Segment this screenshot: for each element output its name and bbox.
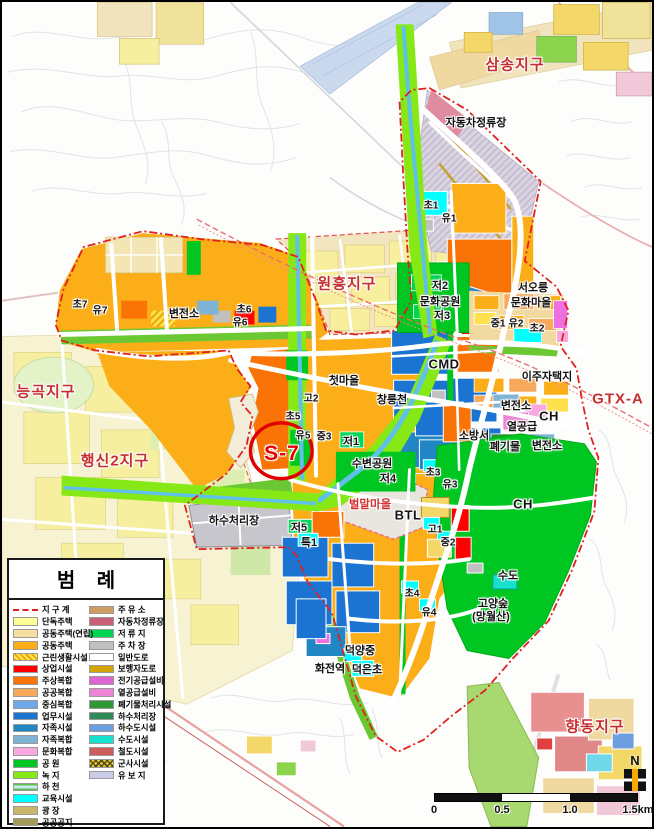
legend-column-right: 주 유 소자동차정류장저 류 지주 차 장일반도로보행자도로전기공급설비열공급설… <box>89 604 165 829</box>
legend-item: 철도시설 <box>89 746 165 758</box>
scale-bar-tick: 0.5 <box>494 804 509 816</box>
legend-item: 전기공급설비 <box>89 675 165 687</box>
legend-swatch <box>89 771 114 780</box>
legend-swatch <box>89 688 114 697</box>
scale-bar-tick: 0 <box>431 804 437 816</box>
legend-swatch <box>13 818 38 827</box>
legend-item-label: 공동주택 <box>42 639 72 651</box>
scale-bar-segment <box>502 794 569 801</box>
legend-swatch <box>13 783 38 792</box>
legend-item: 녹 지 <box>13 769 89 781</box>
legend-item: 공 원 <box>13 757 89 769</box>
legend-item: 하수처리장 <box>89 710 165 722</box>
legend-item-label: 주상복합 <box>42 675 72 687</box>
legend-item: 상업시설 <box>13 663 89 675</box>
legend-item: 자족복합 <box>13 734 89 746</box>
legend-column-left: 지 구 계단독주택공동주택(연립)공동주택근린생활시설상업시설주상복합공공복합중… <box>13 604 89 829</box>
legend-item-label: 근린생활시설 <box>42 651 88 663</box>
legend-item-label: 주 차 장 <box>118 639 145 651</box>
legend-item: 문화복합 <box>13 746 89 758</box>
legend-swatch <box>13 676 38 685</box>
legend-swatch <box>89 735 114 744</box>
legend-swatch <box>89 653 114 662</box>
legend-item-label: 문화복합 <box>42 745 72 757</box>
legend-item: 광 장 <box>13 805 89 817</box>
legend-item-label: 저 류 지 <box>118 628 145 640</box>
legend-item-label: 하수처리장 <box>118 710 156 722</box>
legend-item-label: 철도시설 <box>118 745 148 757</box>
scale-bar: 00.51.01.5km <box>434 793 638 818</box>
legend-item: 군사시설 <box>89 757 165 769</box>
legend-swatch <box>89 700 114 709</box>
legend-swatch <box>13 617 38 626</box>
legend-swatch <box>89 724 114 733</box>
legend-item-label: 교육시설 <box>42 793 72 805</box>
legend-item-label: 열공급설비 <box>118 687 156 699</box>
scale-bar-tick: 1.5km <box>622 804 653 816</box>
legend-item-label: 공공복합 <box>42 687 72 699</box>
legend-columns: 지 구 계단독주택공동주택(연립)공동주택근린생활시설상업시설주상복합공공복합중… <box>9 600 163 829</box>
legend-item: 유 보 지 <box>89 769 165 781</box>
legend-swatch <box>13 712 38 721</box>
compass-n-label: N <box>623 753 647 768</box>
legend-item: 주 유 소 <box>89 604 165 616</box>
legend-swatch <box>13 759 38 768</box>
legend-swatch <box>13 771 38 780</box>
legend-item-label: 보행자도로 <box>118 663 156 675</box>
legend-swatch <box>89 617 114 626</box>
legend-item-label: 자족복합 <box>42 734 72 746</box>
legend-swatch <box>89 759 114 768</box>
legend-item: 근린생활시설 <box>13 651 89 663</box>
legend-swatch <box>13 806 38 815</box>
legend-item-label: 광 장 <box>42 804 60 816</box>
legend-swatch <box>13 735 38 744</box>
legend-item: 업무시설 <box>13 710 89 722</box>
legend-item-label: 자동차정류장 <box>118 616 164 628</box>
legend-item-label: 공 원 <box>42 757 60 769</box>
legend-item: 공공공지 <box>13 816 89 828</box>
legend-swatch <box>89 712 114 721</box>
legend-item: 자족시설 <box>13 722 89 734</box>
legend-swatch <box>13 747 38 756</box>
legend-swatch <box>13 665 38 674</box>
legend-item: 지 구 계 <box>13 604 89 616</box>
legend-item-label: 녹 지 <box>42 769 60 781</box>
legend-item: 자동차정류장 <box>89 616 165 628</box>
legend-item: 수도시설 <box>89 734 165 746</box>
legend-item-label: 주 유 소 <box>118 604 145 616</box>
legend-item: 폐기물처리시설 <box>89 698 165 710</box>
legend-item: 공동주택 <box>13 639 89 651</box>
legend-item: 단독주택 <box>13 616 89 628</box>
legend-swatch <box>13 700 38 709</box>
legend-swatch <box>13 653 38 662</box>
legend-item-label: 자족시설 <box>42 722 72 734</box>
legend-swatch <box>89 665 114 674</box>
legend-swatch <box>13 629 38 638</box>
legend-item-label: 중심복합 <box>42 698 72 710</box>
legend-item: 하수도시설 <box>89 722 165 734</box>
legend-swatch <box>13 794 38 803</box>
legend-panel: 범 례 지 구 계단독주택공동주택(연립)공동주택근린생활시설상업시설주상복합공… <box>7 558 165 825</box>
legend-item: 열공급설비 <box>89 687 165 699</box>
legend-item-label: 하수도시설 <box>118 722 156 734</box>
scale-bar-track <box>434 793 638 802</box>
scale-bar-segment <box>435 794 502 801</box>
legend-item: 중심복합 <box>13 698 89 710</box>
legend-item-label: 수도시설 <box>118 734 148 746</box>
legend-item-label: 유 보 지 <box>118 769 145 781</box>
scale-bar-tick: 1.0 <box>562 804 577 816</box>
legend-item-label: 업무시설 <box>42 710 72 722</box>
legend-swatch <box>89 606 114 615</box>
legend-item: 하 천 <box>13 781 89 793</box>
legend-item: 공공복합 <box>13 687 89 699</box>
legend-item-label: 군사시설 <box>118 757 148 769</box>
legend-item-label: 전기공급설비 <box>118 675 164 687</box>
legend-item-label: 일반도로 <box>118 651 148 663</box>
legend-swatch <box>13 606 38 615</box>
legend-swatch <box>89 641 114 650</box>
legend-item-label: 지 구 계 <box>42 604 69 616</box>
legend-swatch <box>89 747 114 756</box>
legend-title: 범 례 <box>9 560 163 600</box>
legend-item-label: 공동주택(연립) <box>42 628 93 640</box>
north-compass: N <box>623 753 647 791</box>
legend-swatch <box>13 641 38 650</box>
legend-item: 저 류 지 <box>89 628 165 640</box>
scale-bar-segment <box>570 794 637 801</box>
legend-item-label: 공공공지 <box>42 816 72 828</box>
legend-item: 주상복합 <box>13 675 89 687</box>
legend-item: 주 차 장 <box>89 639 165 651</box>
legend-swatch <box>89 676 114 685</box>
legend-item: 교육시설 <box>13 793 89 805</box>
legend-swatch <box>13 724 38 733</box>
legend-item: 보행자도로 <box>89 663 165 675</box>
legend-item-label: 단독주택 <box>42 616 72 628</box>
scale-bar-ticks: 00.51.01.5km <box>434 802 638 818</box>
legend-item: 일반도로 <box>89 651 165 663</box>
legend-item-label: 폐기물처리시설 <box>118 698 171 710</box>
compass-icon <box>624 769 646 791</box>
legend-item: 공동주택(연립) <box>13 628 89 640</box>
legend-item-label: 하 천 <box>42 781 60 793</box>
legend-swatch <box>13 688 38 697</box>
legend-item-label: 상업시설 <box>42 663 72 675</box>
zoning-map-frame: 삼송지구자동차정류장초1유1원흥지구저2문화공원저3서오릉문화마을중1유2초2변… <box>0 0 654 829</box>
